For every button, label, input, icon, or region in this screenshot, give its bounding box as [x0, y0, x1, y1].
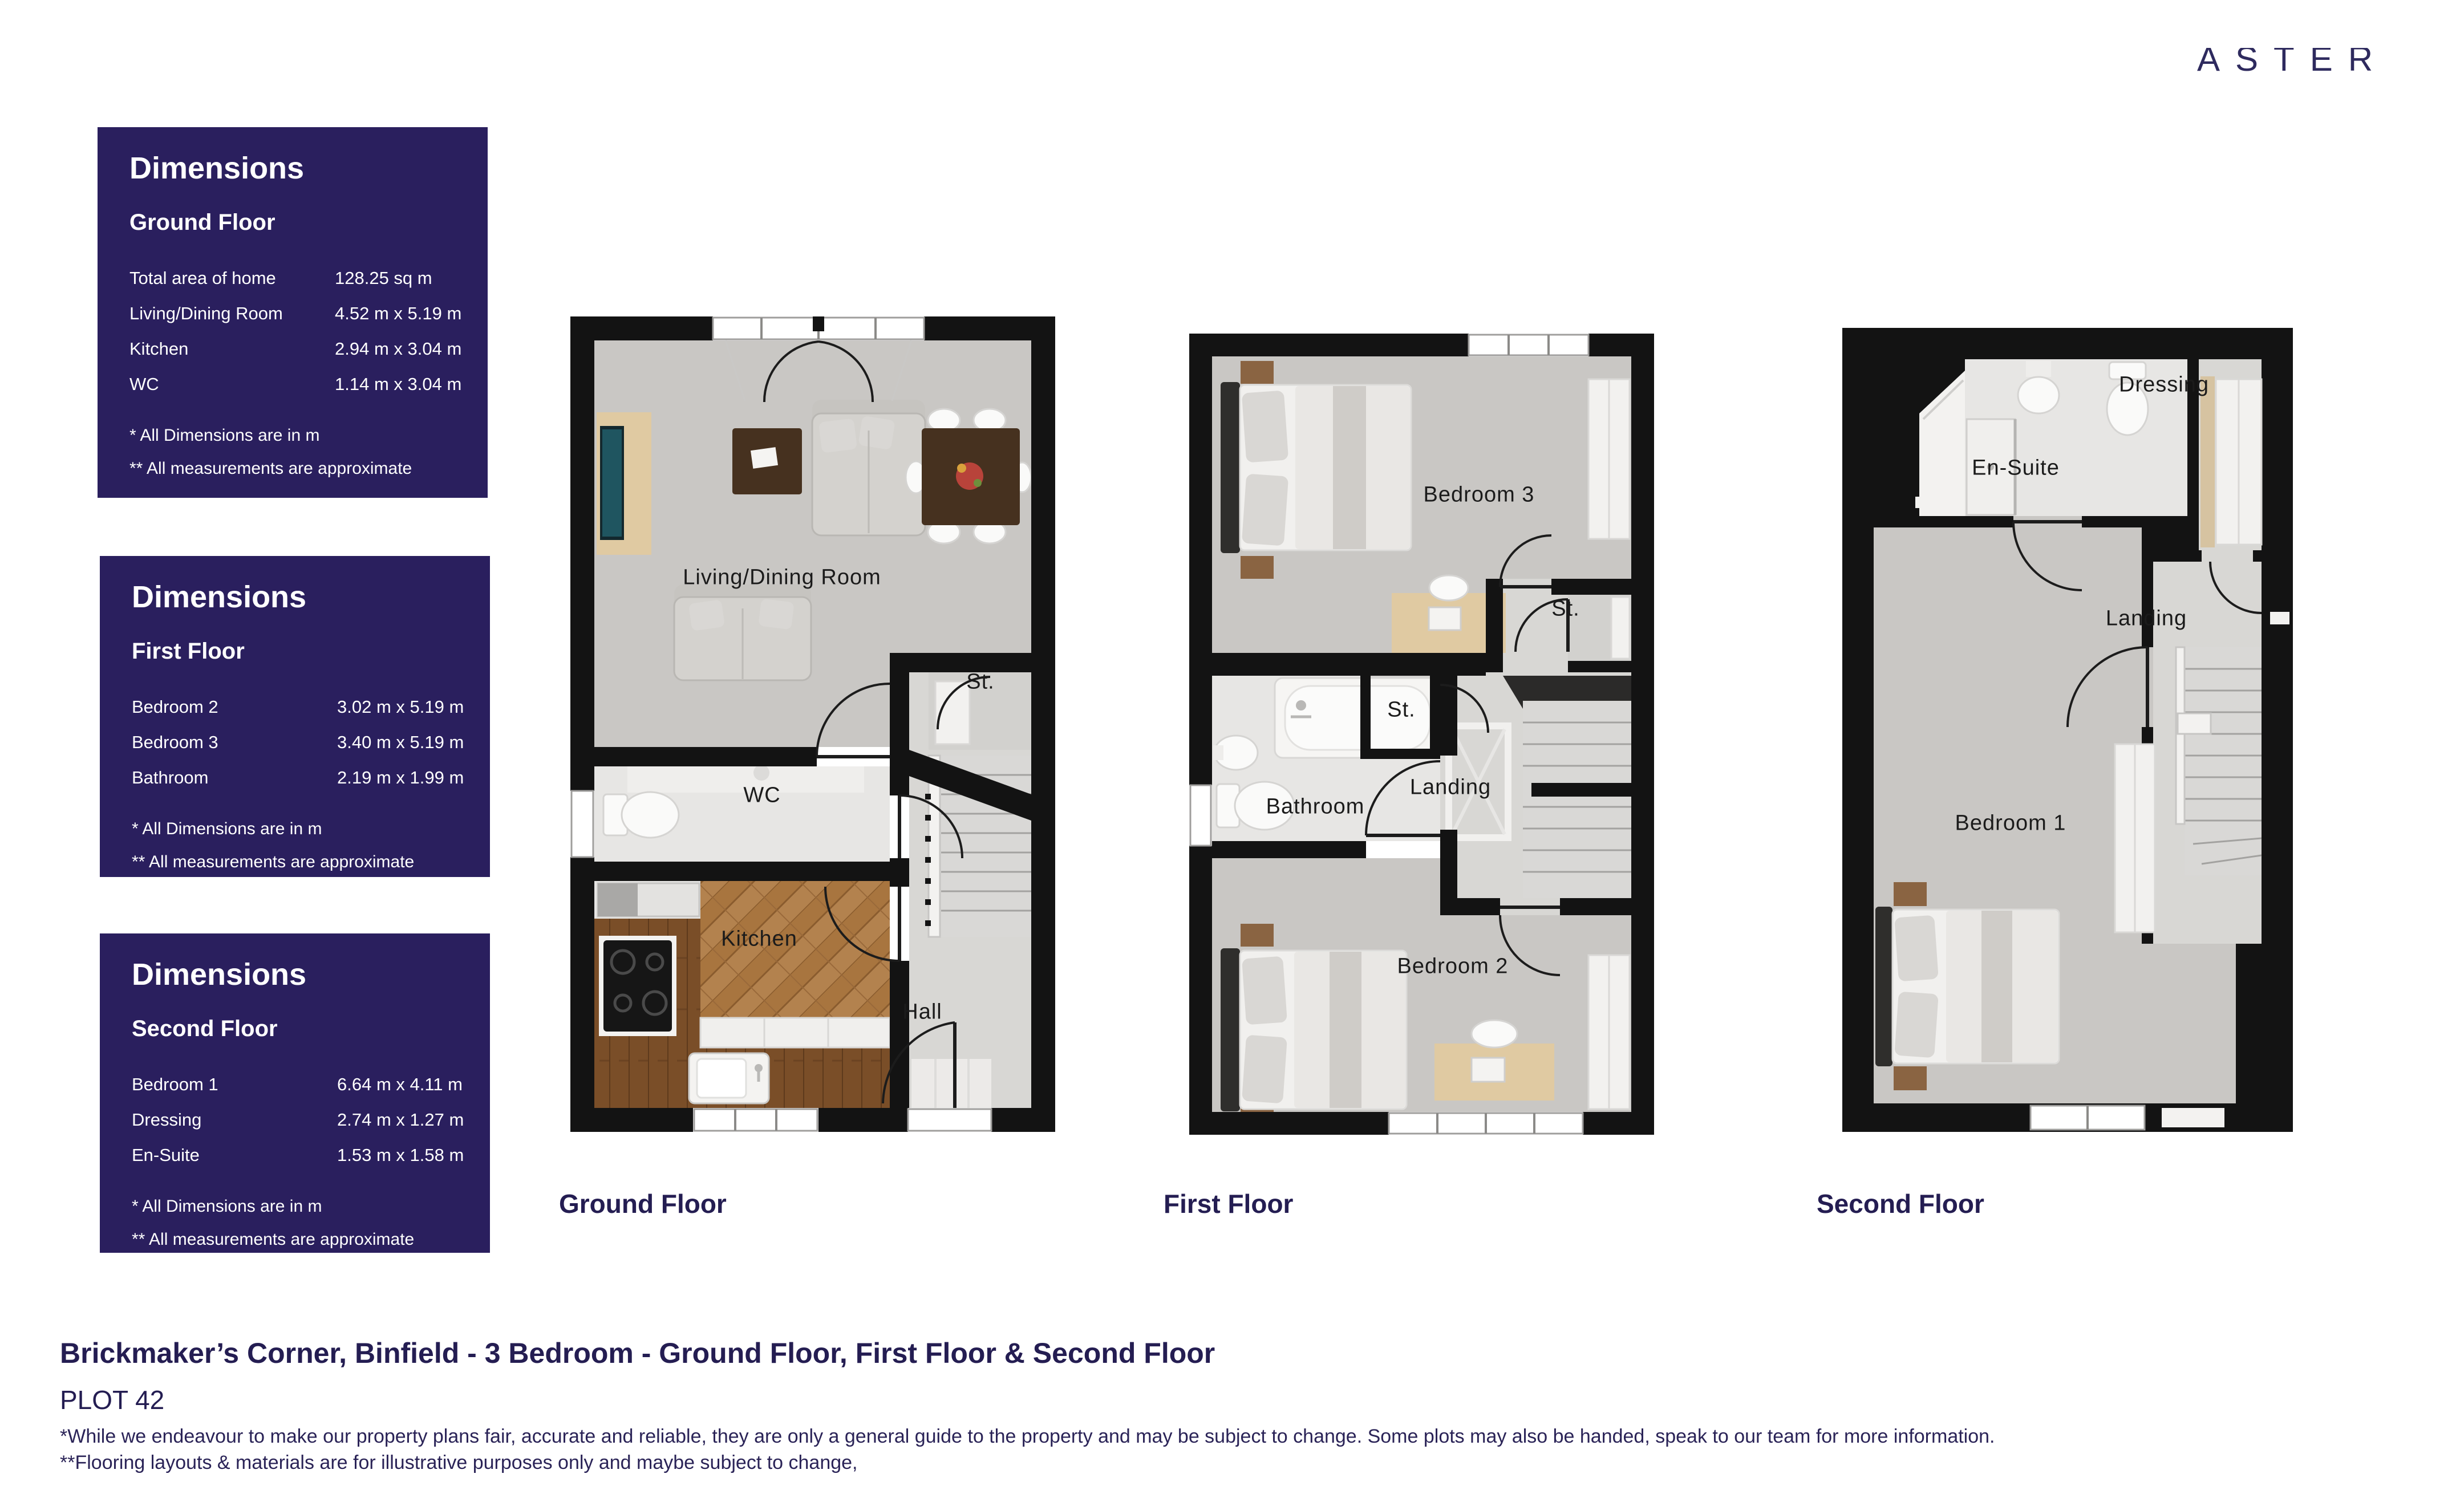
dim-value: 4.52 m x 5.19 m [335, 296, 467, 331]
dim-label: Total area of home [129, 261, 335, 296]
room-label-landing: Landing [1410, 776, 1491, 800]
dim-label: WC [129, 367, 335, 402]
wardrobe [2200, 376, 2262, 547]
bedroom1-floor-ext [2142, 944, 2236, 1103]
second-floor-plan-drawing [1842, 328, 2293, 1132]
floor-plan-second: Dressing En-Suite Landing Bedroom 1 [1842, 328, 2293, 1132]
note-line: ** All measurements are approximate [132, 846, 469, 879]
ground-floor-plan-drawing [570, 316, 1055, 1132]
exterior-step [2162, 1108, 2224, 1127]
page-title: Brickmaker’s Corner, Binfield - 3 Bedroo… [60, 1337, 1215, 1370]
panel-floor-name: Second Floor [132, 1016, 469, 1042]
dim-row: Bathroom 2.19 m x 1.99 m [132, 760, 469, 795]
dim-value: 2.74 m x 1.27 m [337, 1102, 469, 1138]
wardrobe [1588, 955, 1630, 1109]
kitchen-window [694, 1109, 817, 1131]
plot-number: PLOT 42 [60, 1385, 164, 1415]
door-mat [911, 1059, 991, 1108]
room-label-dressing: Dressing [2119, 373, 2209, 397]
disclaimer-line-2: **Flooring layouts & materials are for i… [60, 1452, 858, 1474]
floor-plan-ground: Living/Dining Room St. WC Kitchen Hall [570, 316, 1055, 1132]
room-label-living-dining: Living/Dining Room [683, 566, 881, 590]
note-line: * All Dimensions are in m [132, 813, 469, 846]
toilet-icon [603, 792, 679, 838]
disclaimer-line-1: *While we endeavour to make our property… [60, 1426, 1995, 1448]
note-line: * All Dimensions are in m [129, 419, 467, 452]
dim-label: Bedroom 3 [132, 725, 337, 760]
bathroom-window [1190, 785, 1211, 846]
panel-floor-name: Ground Floor [129, 209, 467, 236]
dim-row: En-Suite 1.53 m x 1.58 m [132, 1138, 469, 1173]
bed-icon [1221, 361, 1411, 579]
wardrobe [1588, 379, 1630, 539]
room-label-storage: St. [966, 670, 994, 695]
panel-title: Dimensions [132, 580, 469, 614]
dim-row: Kitchen 2.94 m x 3.04 m [129, 331, 467, 367]
dim-row: WC 1.14 m x 3.04 m [129, 367, 467, 402]
coffee-table [732, 428, 802, 494]
kitchen-cabinets [700, 1018, 890, 1048]
plan-caption-second-floor: Second Floor [1817, 1188, 1984, 1219]
dim-row: Dressing 2.74 m x 1.27 m [132, 1102, 469, 1138]
dim-value: 2.94 m x 3.04 m [335, 331, 467, 367]
stairs [1523, 701, 1631, 898]
plan-caption-ground-floor: Ground Floor [559, 1188, 727, 1219]
room-label-landing: Landing [2106, 607, 2187, 631]
fridge-unit [598, 883, 699, 916]
panel-floor-name: First Floor [132, 638, 469, 664]
dim-value: 128.25 sq m [335, 261, 467, 296]
sofa-second [674, 584, 811, 680]
room-label-bedroom2: Bedroom 2 [1397, 955, 1509, 979]
room-label-storage-mid: St. [1387, 698, 1415, 722]
dressing-door-opening [2202, 550, 2253, 562]
ceiling-light-icon [753, 765, 769, 781]
note-line: * All Dimensions are in m [132, 1190, 469, 1223]
panel-title: Dimensions [132, 957, 469, 992]
room-label-storage-top: St. [1551, 597, 1579, 622]
dim-value: 3.40 m x 5.19 m [337, 725, 469, 760]
dim-value: 2.19 m x 1.99 m [337, 760, 469, 795]
room-label-ensuite: En-Suite [1972, 456, 2060, 481]
floor-plan-first: Bedroom 3 St. St. Bathroom Landing Bedro… [1189, 334, 1654, 1135]
dim-value: 6.64 m x 4.11 m [337, 1067, 469, 1102]
room-label-bedroom3: Bedroom 3 [1424, 483, 1535, 508]
sink-icon [689, 1053, 769, 1103]
room-label-hall: Hall [902, 1000, 942, 1025]
bed-icon [1875, 882, 2059, 1090]
bedroom1-window [2031, 1106, 2145, 1130]
dim-label: Dressing [132, 1102, 337, 1138]
dim-value: 3.02 m x 5.19 m [337, 689, 469, 725]
hob-icon [599, 936, 676, 1036]
room-label-wc: WC [743, 783, 780, 808]
plan-caption-first-floor: First Floor [1164, 1188, 1293, 1219]
dim-label: Bedroom 2 [132, 689, 337, 725]
bedroom3-window [1469, 335, 1588, 355]
dimensions-panel-first: Dimensions First Floor Bedroom 2 3.02 m … [100, 556, 490, 877]
brand-logo: ASTER [2197, 48, 2420, 74]
vent-right [2270, 612, 2289, 624]
note-line: ** All measurements are approximate [132, 1223, 469, 1256]
dim-row: Bedroom 2 3.02 m x 5.19 m [132, 689, 469, 725]
bed-icon [1221, 924, 1407, 1113]
dresser [2115, 744, 2155, 932]
tv-unit [597, 412, 651, 555]
dim-row: Bedroom 3 3.40 m x 5.19 m [132, 725, 469, 760]
wc-window [572, 791, 593, 857]
dim-row: Total area of home 128.25 sq m [129, 261, 467, 296]
room-label-kitchen: Kitchen [721, 927, 797, 952]
dim-value: 1.14 m x 3.04 m [335, 367, 467, 402]
room-label-bedroom1: Bedroom 1 [1955, 811, 2066, 836]
stairs [2176, 647, 2262, 875]
storage-shelf [1611, 597, 1630, 659]
bedroom2-window [1389, 1113, 1583, 1134]
dim-label: En-Suite [132, 1138, 337, 1173]
brand-logo-text: ASTER [2197, 48, 2388, 74]
panel-title: Dimensions [129, 151, 467, 185]
dim-label: Kitchen [129, 331, 335, 367]
first-floor-plan-drawing [1189, 334, 1654, 1135]
vent-left [1915, 497, 1932, 508]
basin-icon [1213, 736, 1258, 770]
dim-label: Bathroom [132, 760, 337, 795]
dim-row: Living/Dining Room 4.52 m x 5.19 m [129, 296, 467, 331]
dining-table [906, 409, 1031, 543]
dim-value: 1.53 m x 1.58 m [337, 1138, 469, 1173]
room-label-bathroom: Bathroom [1266, 795, 1365, 819]
note-line: ** All measurements are approximate [129, 452, 467, 485]
dimensions-panel-ground: Dimensions Ground Floor Total area of ho… [98, 127, 488, 498]
dim-label: Bedroom 1 [132, 1067, 337, 1102]
dim-label: Living/Dining Room [129, 296, 335, 331]
dimensions-panel-second: Dimensions Second Floor Bedroom 1 6.64 m… [100, 933, 490, 1253]
dim-row: Bedroom 1 6.64 m x 4.11 m [132, 1067, 469, 1102]
